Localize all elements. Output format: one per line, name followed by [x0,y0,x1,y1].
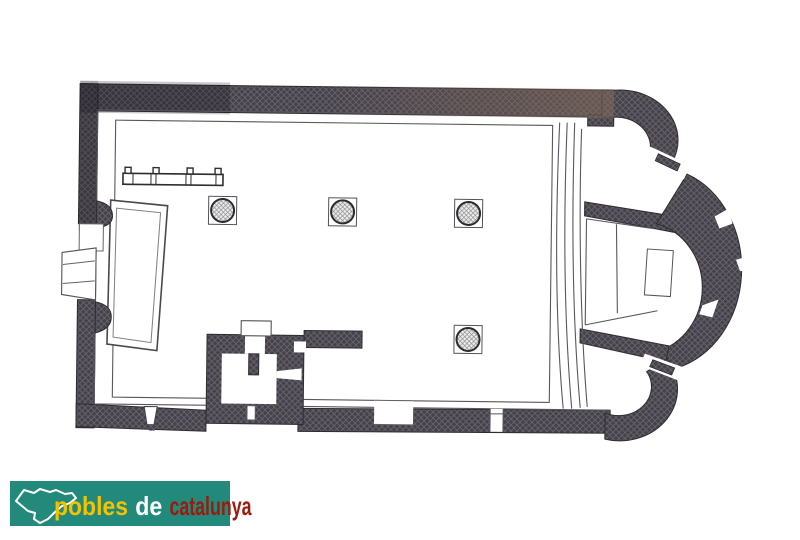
logo-word-pobles: pobles [54,491,128,521]
tower-south-doorway [247,406,255,420]
masonry-walls [76,83,744,442]
doorway-step [149,425,155,431]
scan-shadow-left [78,81,98,231]
presbytery-south-wall [580,329,669,362]
column [456,328,479,351]
tower-notch [294,341,306,352]
tower-step-block [241,321,271,336]
south-wall-stub [304,330,362,348]
west-portal-splay [61,247,96,299]
floor-lines [94,110,660,411]
wall-face-line [94,110,614,410]
chancel-step-line [578,129,591,407]
logo-word-catalunya: catalunya [169,491,251,521]
south-doorway-east [490,409,503,432]
logo-text: pobles de catalunya [54,491,252,521]
pobles-de-catalunya-logo: pobles de catalunya [10,481,252,526]
rail-post [187,168,193,174]
rail-post [153,168,159,174]
logo-word-de: de [135,491,162,521]
wall-niche [79,224,103,251]
inner-offset-line [112,120,552,402]
rail-band [123,173,223,185]
west-portal [61,247,96,299]
chancel-step-line [571,123,584,408]
church-floor-plan: pobles de catalunya [0,0,800,540]
south-door-recess [374,400,413,424]
column [331,200,354,223]
south-wall [298,406,610,435]
communion-rail [123,167,223,185]
rail-post [215,168,221,174]
side-chapel [107,200,168,351]
altar [644,249,673,297]
rail-post [125,167,131,173]
south-wall-west [76,404,206,432]
scanned-page: pobles de catalunya [0,0,800,540]
plan-drawing [60,80,755,442]
tower-door-tab [249,354,259,375]
column [211,199,234,222]
column [457,202,480,225]
